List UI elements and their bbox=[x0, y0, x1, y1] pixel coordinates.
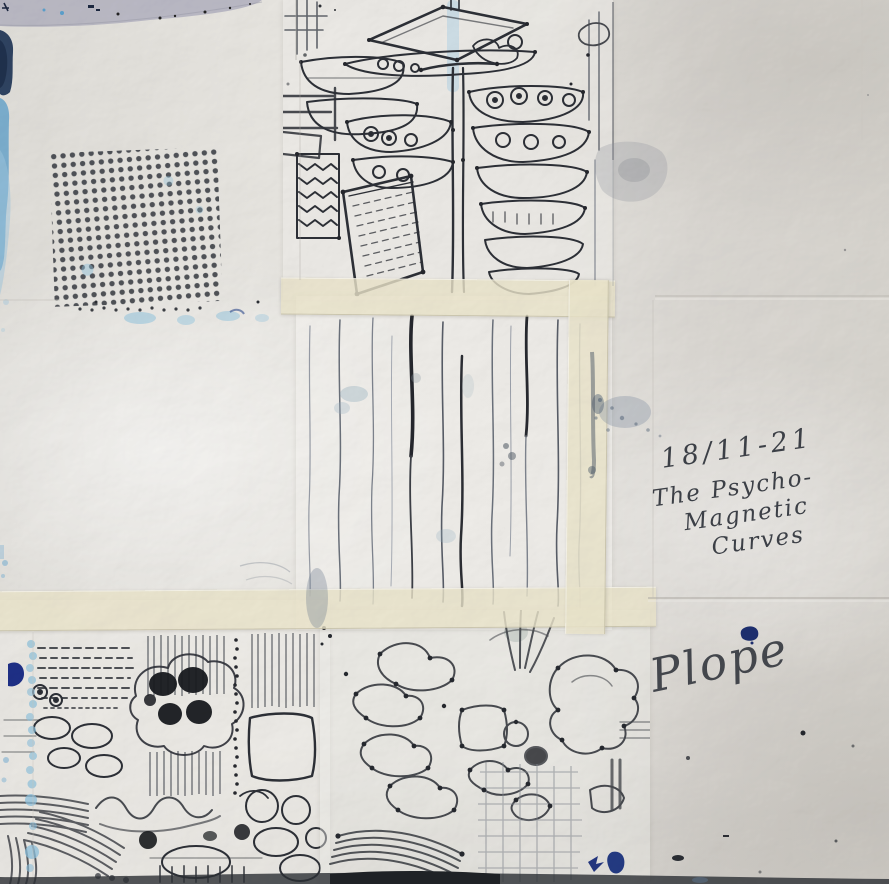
stamp-residue bbox=[78, 301, 269, 326]
blue-gray-stain bbox=[306, 352, 661, 628]
lavender-paper-edge bbox=[0, 0, 336, 27]
gray-ghost-blob bbox=[595, 142, 668, 202]
left-edge-paint bbox=[0, 30, 13, 578]
bottom-edge-shadow bbox=[0, 835, 889, 884]
ghost-arcs bbox=[240, 563, 292, 584]
artwork-photo: 18/11-21 The Psycho- Magnetic Curves Plo… bbox=[0, 0, 889, 884]
